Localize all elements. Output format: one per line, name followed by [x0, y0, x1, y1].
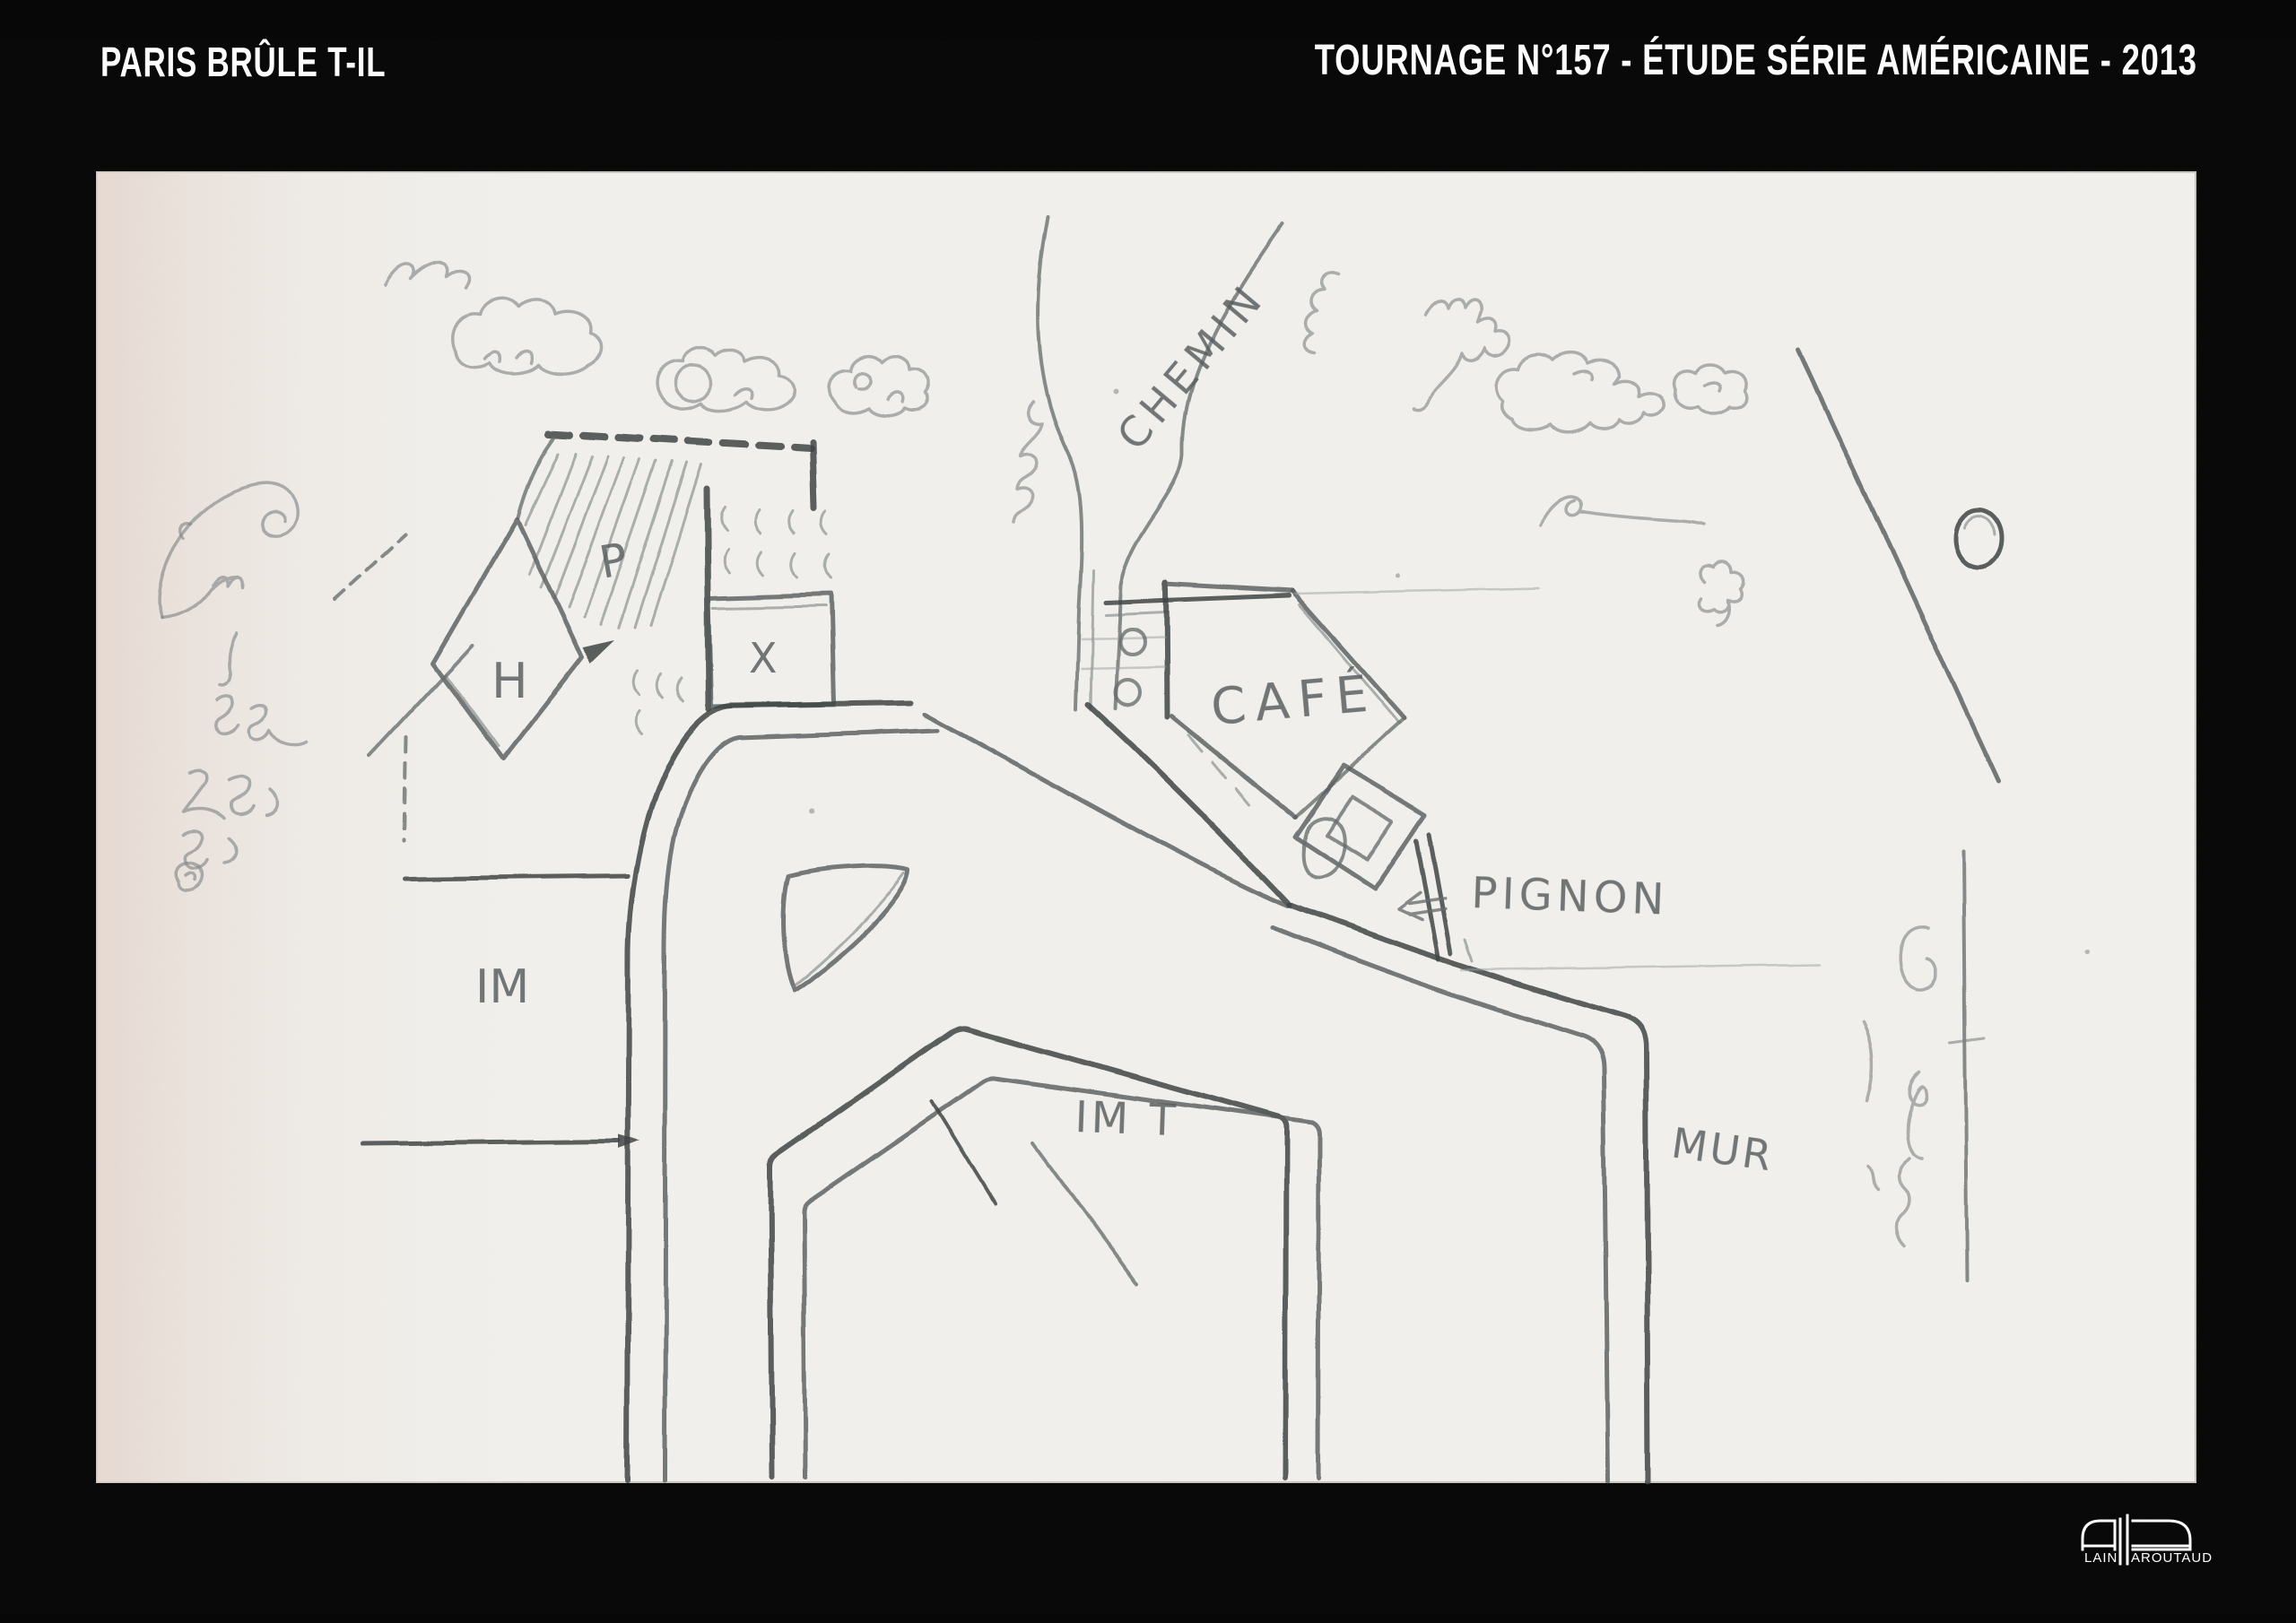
logo-a-glyph-icon — [2083, 1521, 2115, 1549]
label-x: X — [749, 634, 778, 682]
logo-p-stem-icon — [2120, 1515, 2127, 1564]
pencil-location-sketch: CHEMIN CAFÉ PIGNON MUR IM IM T H P X LAI… — [0, 0, 2296, 1623]
scanned-paper — [97, 172, 2196, 1482]
label-h: H — [491, 653, 528, 709]
label-imt: IM T — [1074, 1092, 1180, 1146]
logo-alain-paroutaud: LAIN AROUTAUD — [2083, 1515, 2213, 1566]
label-im: IM — [475, 960, 529, 1014]
logo-text-aroutaud: AROUTAUD — [2131, 1550, 2213, 1566]
logo-text-lain: LAIN — [2084, 1550, 2118, 1566]
scanned-location-sketch-page: { "header": { "left_title": "PARIS BRÛLE… — [0, 0, 2296, 1623]
logo-p-glyph-icon — [2133, 1521, 2190, 1549]
label-pignon: PIGNON — [1471, 868, 1670, 925]
